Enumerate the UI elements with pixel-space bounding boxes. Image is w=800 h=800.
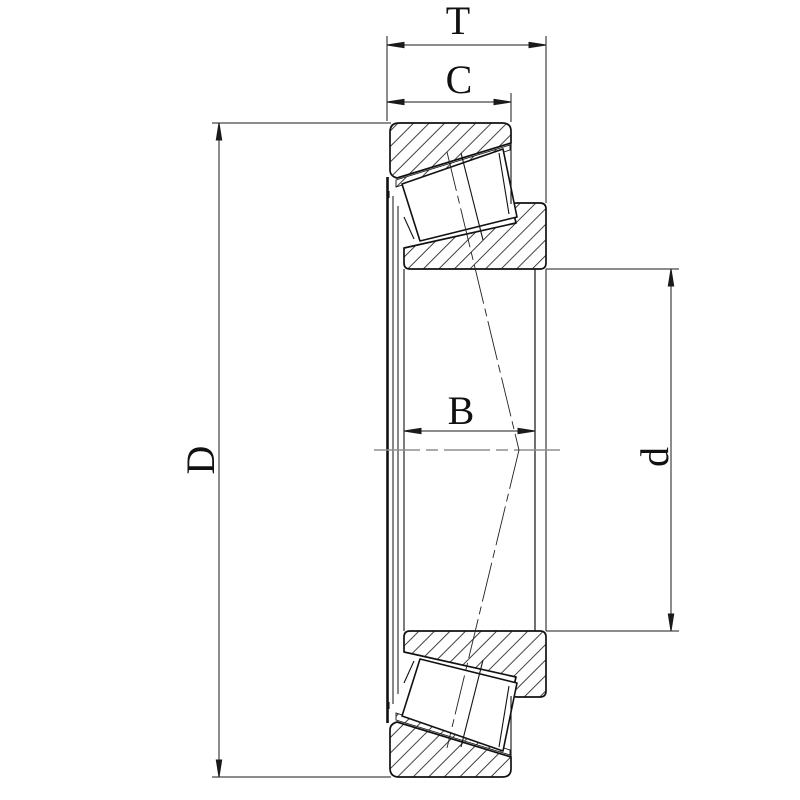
label-d: d — [632, 447, 677, 467]
bearing-drawing-canvas: T C B D d — [0, 0, 800, 800]
label-C: C — [446, 57, 473, 102]
label-B: B — [448, 388, 475, 433]
label-D: D — [178, 446, 223, 475]
tapered-roller-bearing-section: T C B D d — [0, 0, 800, 800]
label-T: T — [446, 0, 470, 43]
background — [0, 0, 800, 800]
